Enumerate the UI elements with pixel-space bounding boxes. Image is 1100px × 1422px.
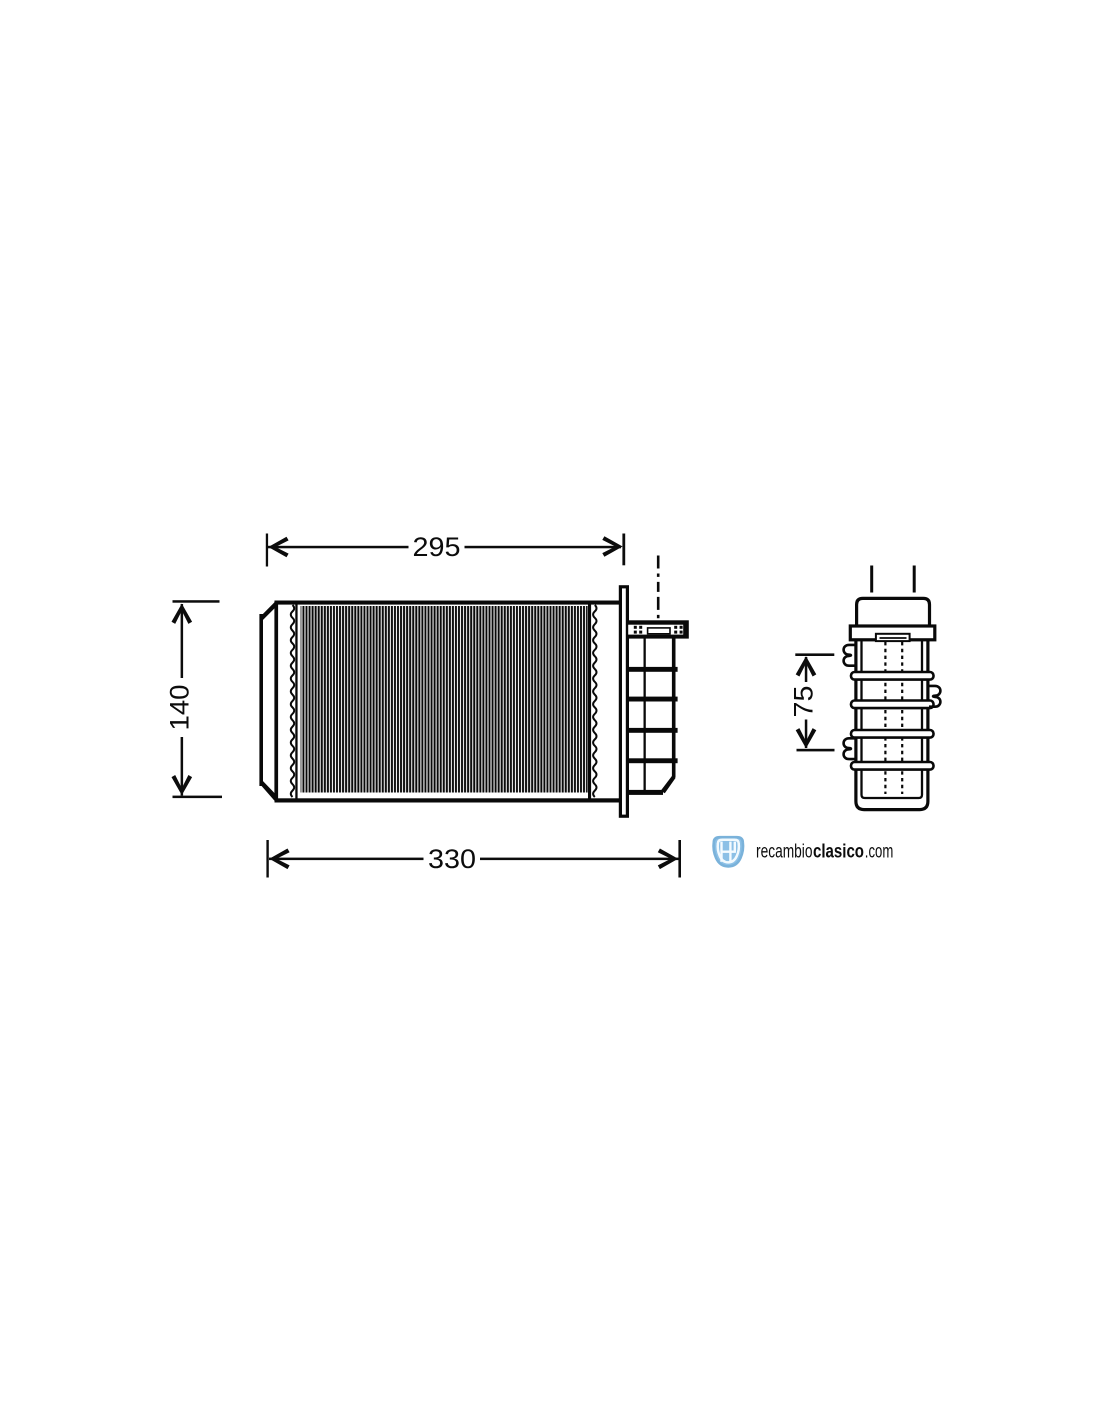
svg-text:.com: .com <box>865 842 894 863</box>
svg-text:140: 140 <box>165 685 195 731</box>
svg-text:recambio: recambio <box>756 842 813 863</box>
svg-text:330: 330 <box>428 844 476 874</box>
svg-text:clasico: clasico <box>813 842 864 863</box>
svg-text:75: 75 <box>789 686 819 718</box>
svg-text:295: 295 <box>413 532 461 562</box>
